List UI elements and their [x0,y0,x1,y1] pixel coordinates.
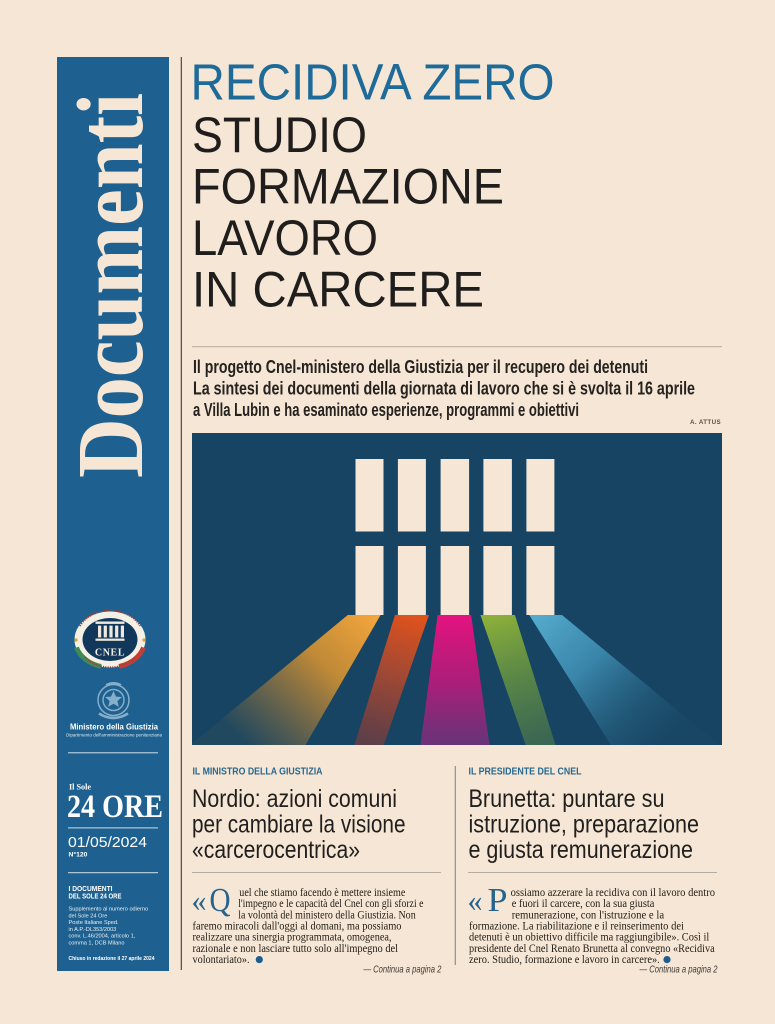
svg-text:Documenti: Documenti [59,93,163,478]
svg-text:per cambiare la visione: per cambiare la visione [192,811,406,839]
svg-text:conv. L.46/2004, articolo 1,: conv. L.46/2004, articolo 1, [69,934,136,940]
svg-text:La sintesi dei documenti della: La sintesi dei documenti della giornata … [193,379,695,399]
svg-text:Brunetta: puntare su: Brunetta: puntare su [469,785,665,813]
svg-text:Q: Q [210,882,231,919]
svg-text:zero. Studio, formazione e lav: zero. Studio, formazione e lavoro in car… [469,952,660,966]
svg-text:N°120: N°120 [69,851,88,859]
svg-text:Chiuso in redazione il 27 apri: Chiuso in redazione il 27 aprile 2024 [69,956,156,962]
svg-text:comma 1, DCB Milano: comma 1, DCB Milano [69,941,125,947]
svg-text:IL MINISTRO DELLA GIUSTIZIA: IL MINISTRO DELLA GIUSTIZIA [193,767,323,778]
svg-text:RECIDIVA ZERO: RECIDIVA ZERO [191,54,555,111]
svg-text:Ministero della Giustizia: Ministero della Giustizia [70,722,158,732]
svg-text:Dipartimento dell'amministrazi: Dipartimento dell'amministrazione penite… [66,733,163,738]
svg-text:01/05/2024: 01/05/2024 [68,835,147,851]
svg-text:IL PRESIDENTE DEL CNEL: IL PRESIDENTE DEL CNEL [469,767,582,778]
svg-text:P: P [488,882,508,919]
svg-text:a Villa Lubin e ha esaminato e: a Villa Lubin e ha esaminato esperienze,… [193,400,579,420]
svg-text:«carcerocentrica»: «carcerocentrica» [192,836,360,864]
svg-text:IN CARCERE: IN CARCERE [192,262,484,318]
svg-text:volontariato».: volontariato». [193,952,250,966]
svg-text:Poste Italiane Sped.: Poste Italiane Sped. [69,920,120,926]
svg-text:A. ATTUS: A. ATTUS [690,419,721,426]
svg-text:Il progetto Cnel-ministero del: Il progetto Cnel-ministero della Giustiz… [193,357,648,377]
svg-text:CNEL: CNEL [95,648,125,659]
svg-text:istruzione, preparazione: istruzione, preparazione [469,811,700,839]
svg-text:Supplemento al numero odierno: Supplemento al numero odierno [69,907,149,913]
svg-text:FORMAZIONE: FORMAZIONE [192,159,504,215]
svg-text:— Continua a pagina 2: — Continua a pagina 2 [363,964,442,976]
svg-text:— Continua a pagina 2: — Continua a pagina 2 [639,964,718,976]
svg-text:STUDIO: STUDIO [192,107,367,163]
svg-text:Nordio: azioni comuni: Nordio: azioni comuni [192,785,397,813]
svg-text:LAVORO: LAVORO [192,210,378,266]
svg-text:«: « [192,882,207,918]
svg-text:del Sole 24 Ore: del Sole 24 Ore [69,913,108,919]
svg-text:24 ORE: 24 ORE [67,789,163,825]
svg-text:in A.P.-DL353/2003: in A.P.-DL353/2003 [69,927,117,933]
svg-text:DEL SOLE 24 ORE: DEL SOLE 24 ORE [69,892,122,901]
svg-text:e giusta remunerazione: e giusta remunerazione [469,836,694,864]
svg-text:«: « [468,882,483,918]
